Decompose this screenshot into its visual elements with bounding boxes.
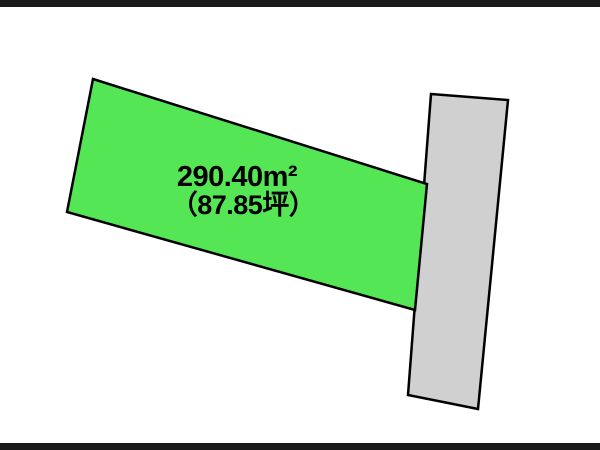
area-label-tsubo: （87.85坪） — [171, 190, 316, 220]
area-label-square-meters: 290.40m² — [177, 161, 298, 193]
letterbox-bottom-bar — [0, 443, 600, 450]
plot-diagram-canvas: 290.40m² （87.85坪） — [0, 0, 600, 450]
letterbox-top-bar — [0, 0, 600, 7]
land-plot-diagram: 290.40m² （87.85坪） — [0, 0, 600, 450]
